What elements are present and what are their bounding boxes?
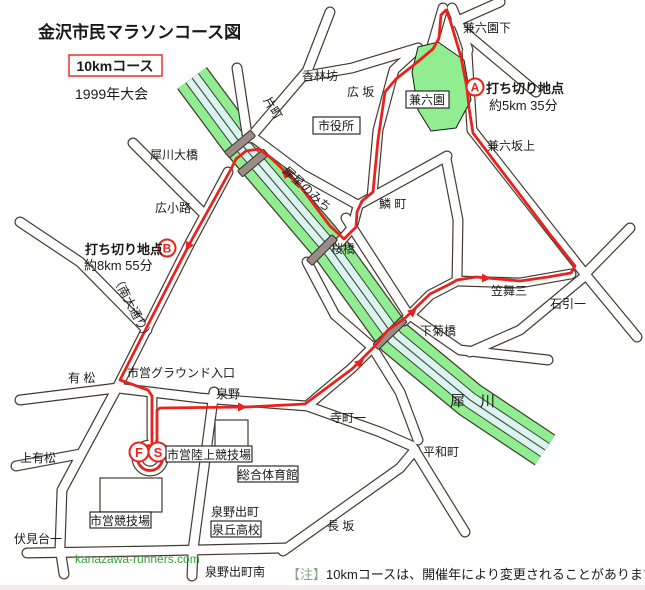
footnote: 【注】10kmコースは、開催年により変更されることがあります。 (287, 567, 645, 582)
city-stadium-label: 市営競技場 (90, 513, 150, 528)
arimatsu-label: 有 松 (68, 371, 95, 385)
fushimidai-label: 伏見台一 (14, 531, 62, 546)
course-badge-label: 10kmコース (76, 58, 153, 74)
marathon-course-map-page: A B F S 金沢市民マラソンコース図 10kmコース 1999年大会 市役所… (0, 0, 645, 590)
marker-b-letter: B (163, 242, 172, 256)
kenroku-sakaue-label: 兼六坂上 (487, 139, 535, 153)
marker-finish-letter: F (135, 445, 143, 460)
shiei-stadium-grounds (100, 478, 162, 512)
kenrokuen-shita-label: 兼六園下 (463, 21, 511, 35)
ground-entrance-label: 市営グラウンド入口 (127, 365, 235, 380)
kami-arimatsu-label: 上有松 (20, 451, 56, 465)
stadium-building (215, 420, 248, 447)
ishibiki-label: 石引一 (550, 297, 586, 311)
hirosaka-label: 広 坂 (347, 85, 374, 99)
korinbo-label: 香林坊 (302, 68, 338, 83)
athletics-stadium-label: 市営陸上競技場 (167, 447, 251, 462)
nagasaka-label: 長 坂 (327, 519, 354, 533)
shimokikubashi-label: 下菊橋 (420, 324, 456, 338)
course-map-canvas: A B F S 金沢市民マラソンコース図 10kmコース 1999年大会 市役所… (0, 0, 645, 590)
gym-label: 総合体育館 (238, 467, 298, 482)
izumino-demachi-minami-label: 泉野出町南 (205, 564, 265, 579)
sakurabashi-label: 桜橋 (331, 242, 355, 256)
heiwamachi-label: 平和町 (423, 445, 459, 459)
footnote-text: 10kmコースは、開催年により変更されることがあります。 (326, 567, 645, 582)
watermark: kanazawa-runners.com (75, 552, 200, 566)
year-label: 1999年大会 (75, 86, 148, 102)
marker-a-letter: A (471, 81, 480, 95)
teramachi-label: 寺町一 (330, 411, 366, 425)
saigawa-ohashi-label: 犀川大橋 (150, 148, 198, 162)
cutoff-a-label: 打ち切り地点 (486, 81, 564, 96)
cutoff-a-detail: 約5km 35分 (489, 98, 558, 113)
kasamai-label: 笠舞三 (491, 283, 527, 298)
kenrokuen-label: 兼六園 (409, 93, 445, 107)
city-hall-label: 市役所 (318, 118, 354, 133)
urokomachi-label: 鱗 町 (379, 197, 406, 211)
cutoff-b-detail: 約8km 55分 (84, 258, 153, 273)
izumino-label: 泉野 (216, 387, 240, 401)
footnote-prefix: 【注】 (287, 567, 326, 582)
cutoff-b-label: 打ち切り地点 (85, 242, 163, 257)
izumigaoka-hs-label: 泉丘高校 (212, 522, 260, 537)
saigawa-river-label: 犀 川 (450, 393, 495, 410)
marker-start-letter: S (154, 445, 163, 460)
hirokoji-label: 広小路 (155, 200, 191, 215)
izumino-demachi-label: 泉野出町 (211, 505, 259, 519)
map-title: 金沢市民マラソンコース図 (37, 22, 241, 42)
page-edge-strip (0, 585, 645, 590)
minami-odori-label: （南大通り） (109, 272, 156, 343)
